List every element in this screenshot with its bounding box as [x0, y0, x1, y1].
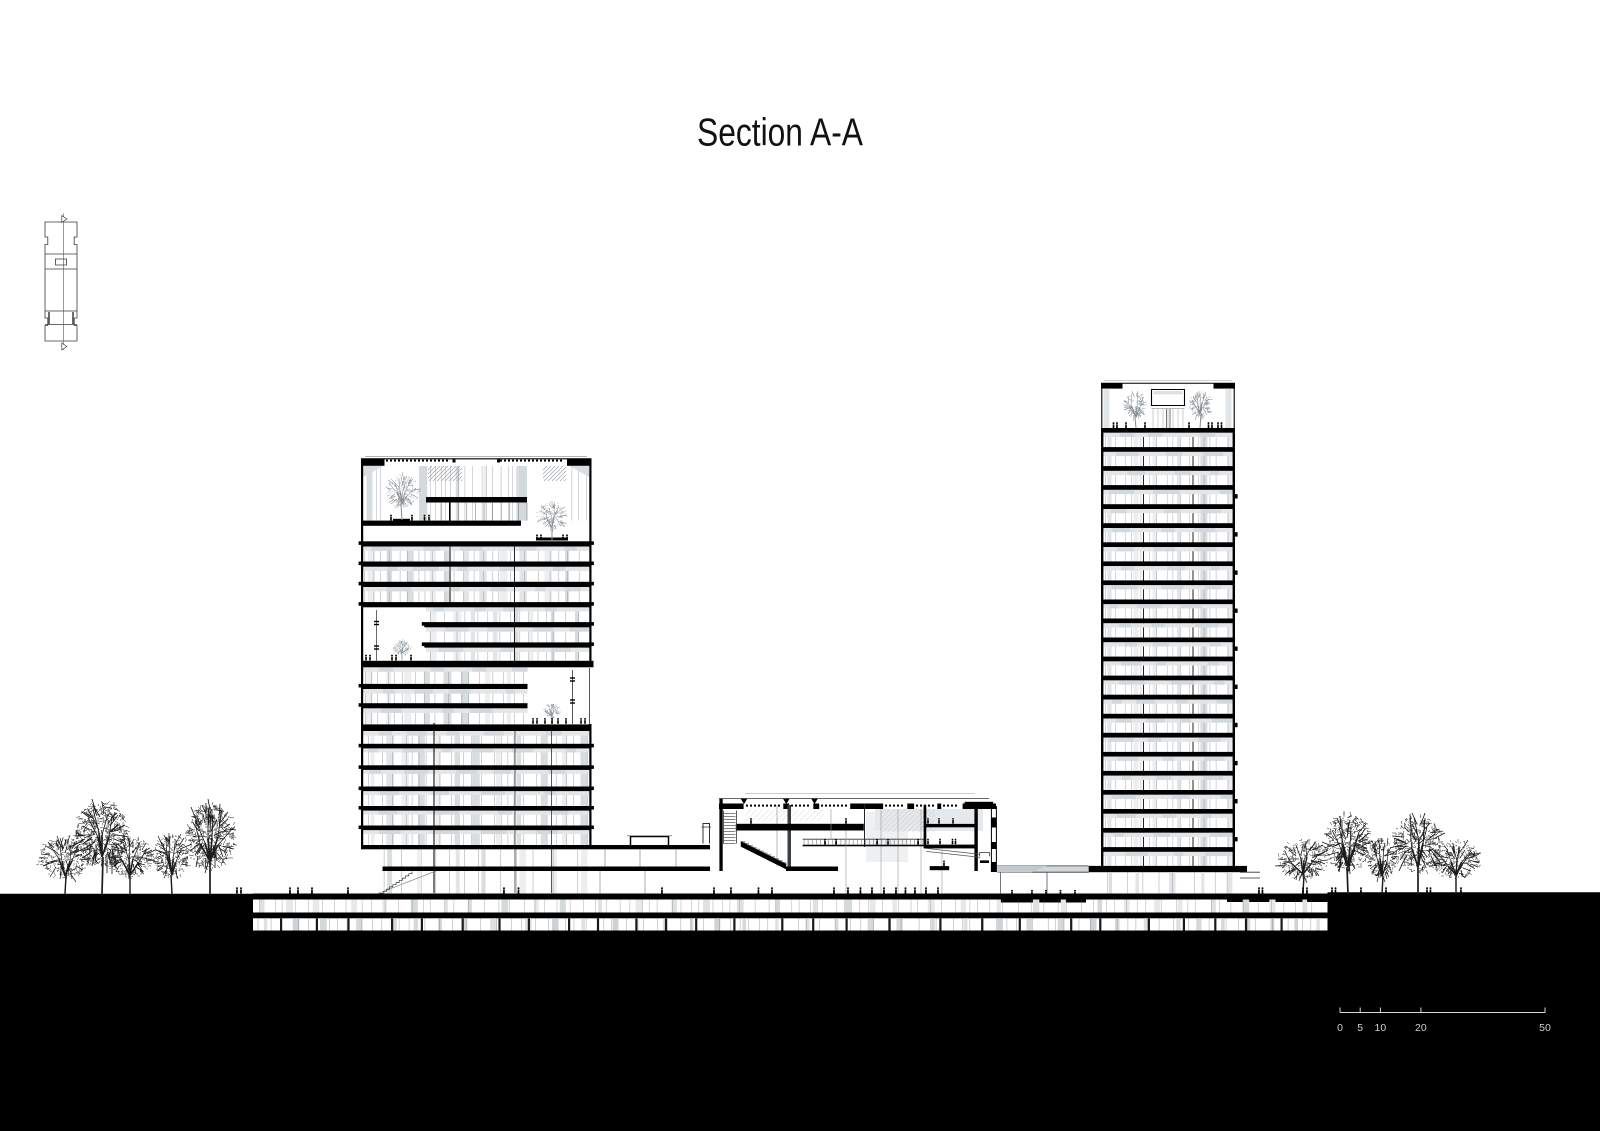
svg-text:Section A-A: Section A-A	[697, 112, 863, 155]
svg-text:5: 5	[1357, 1022, 1363, 1034]
svg-text:0: 0	[1337, 1022, 1343, 1034]
svg-text:10: 10	[1375, 1022, 1387, 1034]
svg-text:50: 50	[1539, 1022, 1551, 1034]
svg-text:20: 20	[1415, 1022, 1427, 1034]
